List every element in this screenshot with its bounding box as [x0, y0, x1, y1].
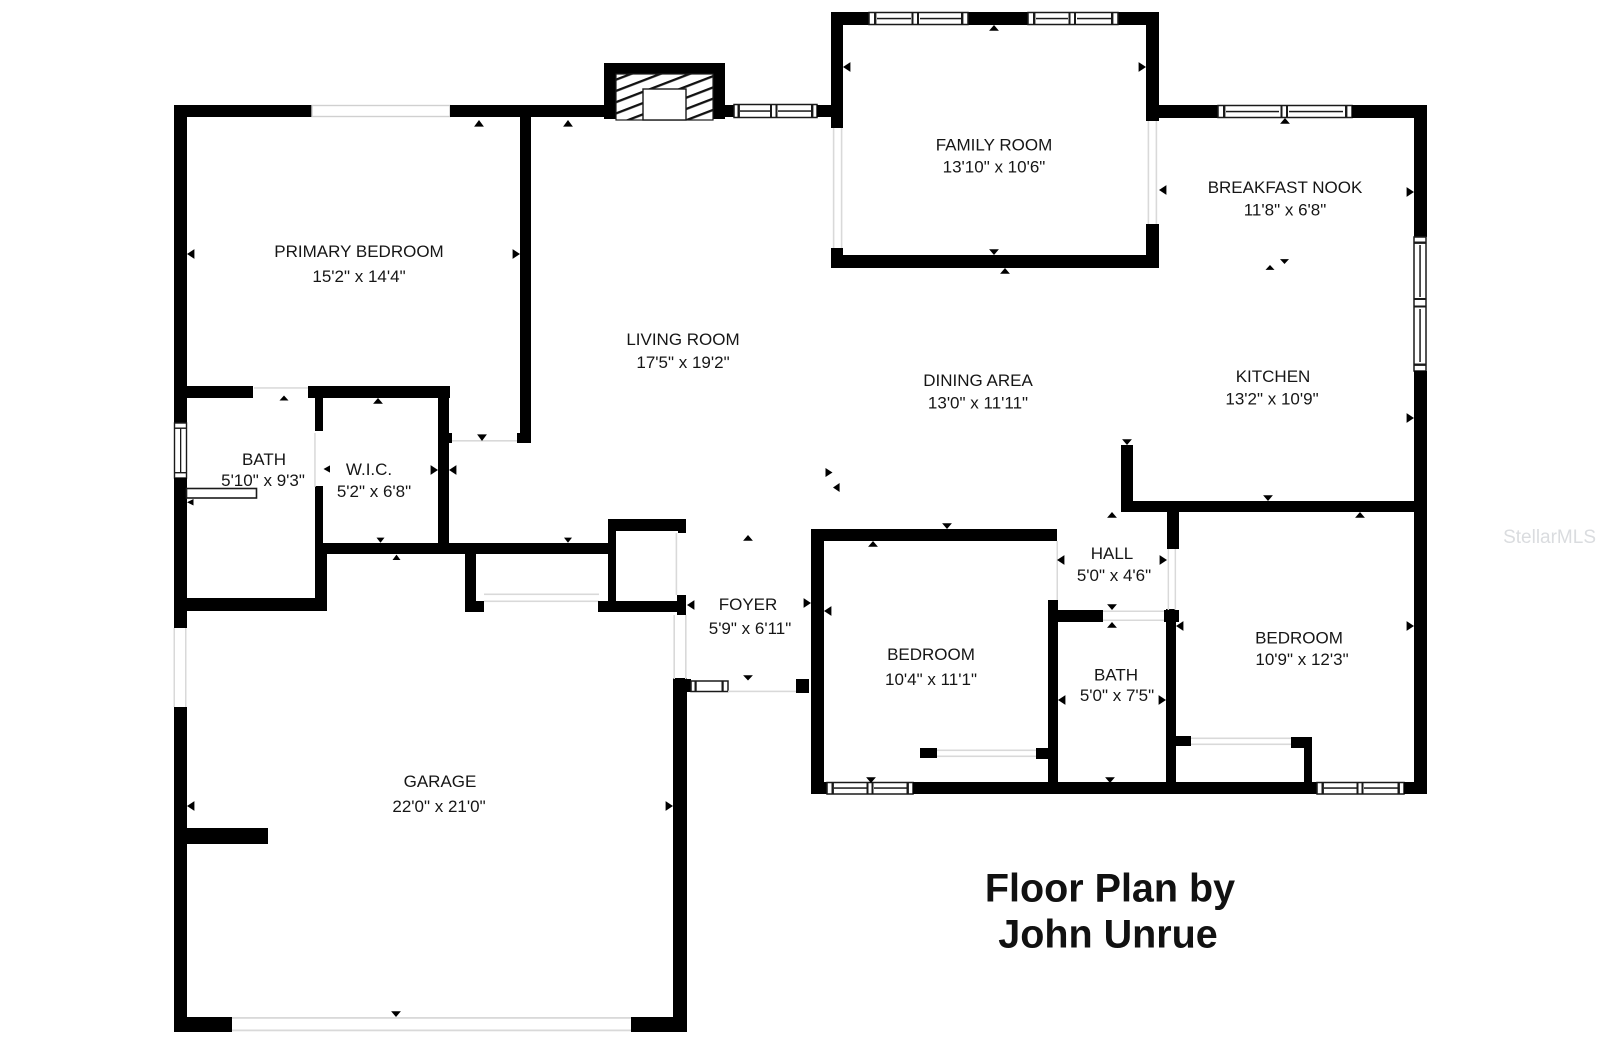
svg-text:John Unrue: John Unrue [998, 913, 1217, 957]
svg-text:FAMILY ROOM: FAMILY ROOM [936, 136, 1053, 155]
svg-text:Floor Plan by: Floor Plan by [985, 867, 1235, 911]
svg-text:5'9" x 6'11": 5'9" x 6'11" [709, 619, 792, 638]
svg-text:BATH: BATH [1094, 666, 1138, 685]
svg-text:11'8" x 6'8": 11'8" x 6'8" [1244, 201, 1327, 220]
svg-text:PRIMARY BEDROOM: PRIMARY BEDROOM [274, 242, 443, 261]
svg-text:13'10" x 10'6": 13'10" x 10'6" [943, 158, 1046, 177]
svg-text:StellarMLS: StellarMLS [1503, 527, 1596, 548]
svg-text:BEDROOM: BEDROOM [887, 645, 975, 664]
svg-text:5'0" x 4'6": 5'0" x 4'6" [1077, 566, 1151, 585]
svg-text:W.I.C.: W.I.C. [346, 460, 392, 479]
svg-text:5'10" x 9'3": 5'10" x 9'3" [221, 471, 305, 490]
svg-text:5'2" x 6'8": 5'2" x 6'8" [337, 482, 411, 501]
svg-text:GARAGE: GARAGE [404, 772, 477, 791]
svg-text:BATH: BATH [242, 450, 286, 469]
svg-text:BREAKFAST NOOK: BREAKFAST NOOK [1208, 178, 1363, 197]
svg-text:17'5" x 19'2": 17'5" x 19'2" [636, 353, 729, 372]
svg-text:BEDROOM: BEDROOM [1255, 629, 1343, 648]
svg-text:13'2" x 10'9": 13'2" x 10'9" [1225, 390, 1318, 409]
svg-text:10'9" x 12'3": 10'9" x 12'3" [1255, 650, 1348, 669]
svg-text:FOYER: FOYER [719, 595, 778, 614]
svg-text:10'4" x 11'1": 10'4" x 11'1" [885, 670, 977, 689]
svg-text:HALL: HALL [1091, 544, 1134, 563]
svg-text:DINING AREA: DINING AREA [923, 371, 1033, 390]
svg-text:5'0" x 7'5": 5'0" x 7'5" [1080, 686, 1154, 705]
svg-text:22'0" x 21'0": 22'0" x 21'0" [392, 797, 485, 816]
svg-text:15'2" x 14'4": 15'2" x 14'4" [312, 267, 405, 286]
svg-text:KITCHEN: KITCHEN [1236, 367, 1311, 386]
svg-text:13'0" x 11'11": 13'0" x 11'11" [928, 394, 1028, 413]
svg-text:LIVING ROOM: LIVING ROOM [626, 330, 739, 349]
